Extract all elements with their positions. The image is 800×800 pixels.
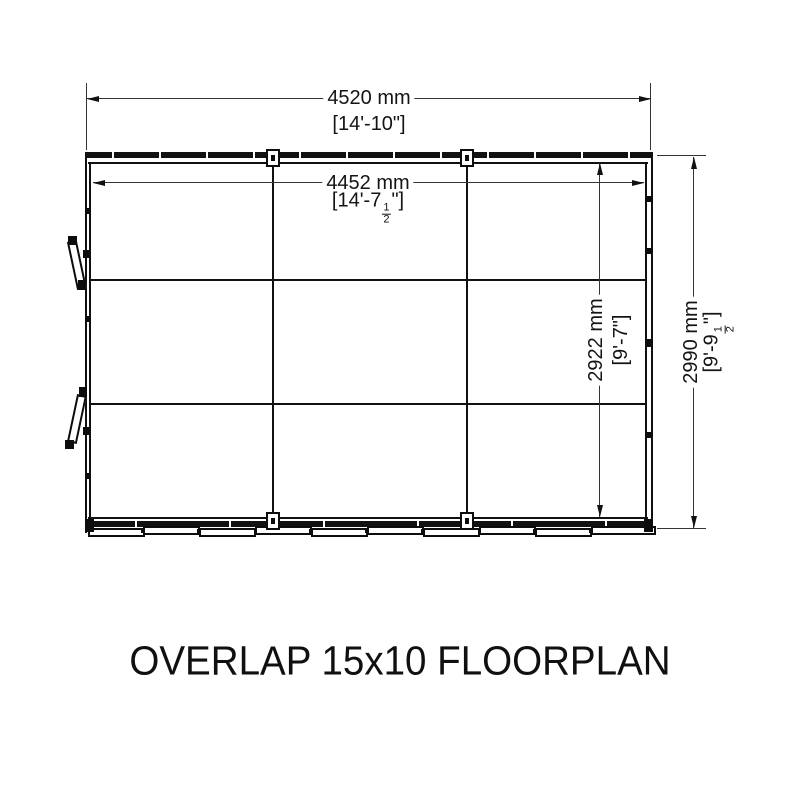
- floorplan-page: 4520 mm [14'-10"] 4452 mm [14'-712"] 292…: [0, 0, 800, 800]
- wall-joint-mark: [85, 208, 91, 214]
- cladding-joint: [534, 152, 536, 158]
- imperial-pre: [14'-7: [332, 190, 381, 212]
- dim-arrow-right-icon: [632, 180, 644, 186]
- grid-line-vertical-1: [272, 164, 274, 517]
- cladding-joint: [112, 152, 114, 158]
- grid-line-horizontal-1: [91, 279, 646, 281]
- dim-arrow-left-icon: [93, 180, 105, 186]
- cladding-joint: [323, 521, 325, 527]
- connector-post: [460, 512, 474, 530]
- window-knob-icon: [83, 250, 90, 258]
- drawing-title: OVERLAP 15x10 FLOORPLAN: [129, 638, 670, 685]
- window-hinge-icon: [78, 280, 86, 290]
- connector-post: [266, 512, 280, 530]
- cladding-joint: [135, 521, 137, 527]
- overlap-slat: [479, 526, 536, 535]
- dim-arrow-up-icon: [597, 163, 603, 175]
- cladding-joint: [159, 152, 161, 158]
- fraction: 12: [382, 202, 390, 226]
- overlap-slat: [199, 528, 256, 537]
- dim-text-metric: 2990 mm: [680, 296, 702, 387]
- wall-joint-mark: [645, 196, 653, 202]
- connector-post: [266, 149, 280, 167]
- cladding-joint: [581, 152, 583, 158]
- wall-joint-mark: [645, 339, 653, 347]
- dim-arrow-left-icon: [87, 96, 99, 102]
- slat-joint: [365, 529, 369, 533]
- imperial-post: "]: [701, 311, 723, 324]
- dim-arrow-up-icon: [691, 157, 697, 169]
- corner-block: [644, 519, 653, 532]
- overlap-slat: [88, 528, 145, 537]
- cladding-joint: [487, 152, 489, 158]
- cladding-joint: [440, 152, 442, 158]
- extension-line: [650, 83, 651, 150]
- dim-text-imperial: [9'-912"]: [701, 307, 738, 376]
- dim-arrow-down-icon: [597, 505, 603, 517]
- overlap-slat: [143, 526, 200, 535]
- wall-top-inner-line: [88, 162, 648, 164]
- wall-joint-mark: [85, 316, 91, 322]
- slat-joint: [533, 529, 537, 533]
- dim-arrow-right-icon: [639, 96, 651, 102]
- cladding-joint: [628, 152, 630, 158]
- cladding-joint: [206, 152, 208, 158]
- slat-joint: [589, 529, 593, 533]
- cladding-joint: [299, 152, 301, 158]
- overlap-slat: [311, 528, 368, 537]
- dim-text-imperial: [9'-7"]: [610, 311, 632, 370]
- wall-top-cladding: [85, 152, 653, 158]
- overlap-slat: [367, 526, 424, 535]
- connector-post: [460, 149, 474, 167]
- slat-joint: [141, 529, 145, 533]
- corner-block: [85, 519, 94, 532]
- imperial-post: "]: [391, 190, 404, 212]
- wall-joint-mark: [645, 432, 653, 438]
- grid-line-vertical-2: [466, 164, 468, 517]
- wall-joint-mark: [645, 248, 653, 254]
- dim-text-metric: 2922 mm: [585, 294, 607, 385]
- fraction: 12: [713, 325, 737, 333]
- window-knob-icon: [83, 427, 90, 435]
- cladding-joint: [253, 152, 255, 158]
- imperial-pre: [9'-9: [701, 334, 723, 372]
- slat-joint: [197, 529, 201, 533]
- cladding-joint: [393, 152, 395, 158]
- dim-arrow-down-icon: [691, 516, 697, 528]
- cladding-joint: [346, 152, 348, 158]
- extension-line: [657, 155, 706, 156]
- wall-left-inner-line: [89, 162, 91, 519]
- wall-joint-mark: [85, 473, 91, 479]
- fraction-denominator: 2: [726, 325, 738, 333]
- wall-bottom-inner-line: [88, 517, 648, 519]
- window-tip-block: [68, 236, 77, 245]
- overlap-slat: [535, 528, 592, 537]
- grid-line-horizontal-2: [91, 403, 646, 405]
- window-sash: [67, 394, 87, 444]
- slat-joint: [421, 529, 425, 533]
- dim-text-metric: 4520 mm: [323, 87, 414, 109]
- extension-line: [657, 528, 706, 529]
- fraction-denominator: 2: [382, 215, 390, 227]
- cladding-joint: [229, 521, 231, 527]
- extension-line: [86, 83, 87, 150]
- window-tip-block: [65, 440, 74, 449]
- dim-text-imperial: [14'-712"]: [328, 190, 408, 227]
- dim-text-imperial: [14'-10"]: [328, 113, 409, 135]
- overlap-slat: [255, 526, 312, 535]
- slat-joint: [309, 529, 313, 533]
- window-hinge-icon: [79, 387, 87, 397]
